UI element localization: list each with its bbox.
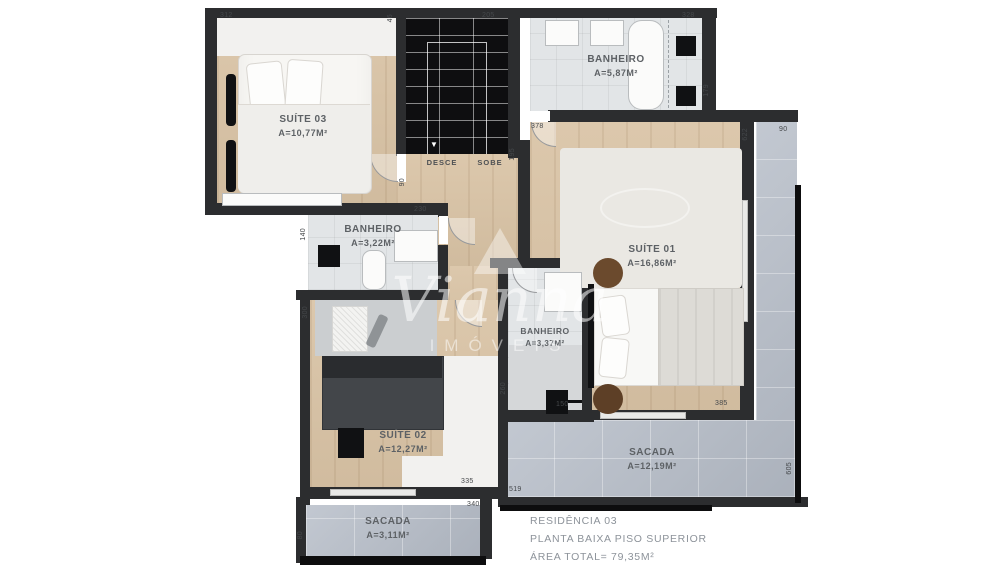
wall-left [205,8,217,215]
banheiro-center-label: BANHEIRO A=3,37M² [495,326,595,348]
dimension-label: 205 [482,12,495,19]
room-name: SUÍTE 02 [333,430,473,441]
dimension-label: 260 [500,382,507,395]
suite01-label: SUÍTE 01 A=16,86M² [582,244,722,268]
wall-stairs-right [508,8,520,158]
banheiro-center-shower-arm [568,400,582,403]
wall-banheiro-top-bottom [548,110,798,122]
wall-suite02-left [300,295,310,505]
suite01-bed-blanket [658,288,744,386]
sacada-big-railing [500,505,712,511]
suite01-pillow-2 [598,337,630,380]
dimension-label: 385 [715,400,728,407]
dimension-label: 378 [531,123,544,130]
dimension-label: 312 [220,12,233,19]
room-name: SUÍTE 03 [233,114,373,125]
suite02-bed-pillows [322,356,442,378]
room-name: BANHEIRO [495,326,595,336]
suite03-dresser [222,193,342,206]
dimension-label: 90 [399,178,406,186]
room-name: SACADA [318,516,458,527]
dimension-label: 230 [414,206,427,213]
balcony-strip-railing [795,185,801,503]
suite02-white-corner [402,456,498,488]
dimension-label: 328 [682,12,695,19]
suite03-wardrobe-strip [217,18,397,56]
banheiro-top-fixture-2 [676,86,696,106]
staircase-u-outline [427,42,487,154]
dimension-label: 46 [387,14,394,22]
banheiro-top-door-gap [530,111,550,121]
dimension-label: 195 [509,148,516,161]
suite02-closet-rug [332,306,368,352]
banheiro-mid-toilet [362,250,386,290]
room-area: A=3,22M² [303,238,443,248]
sacada-big-label: SACADA A=12,19M² [582,447,722,471]
room-name: SACADA [582,447,722,458]
dimension-label: 140 [300,228,307,241]
room-area: A=12,27M² [333,444,473,454]
banheiro-top-label: BANHEIRO A=5,87M² [546,54,686,78]
room-name: BANHEIRO [303,224,443,235]
dimension-label: 605 [786,462,793,475]
wall-suite03-stairs [396,8,406,156]
wall-hall-suite01 [518,140,530,266]
room-area: A=5,87M² [546,68,686,78]
room-area: A=12,19M² [582,461,722,471]
wall-top [205,8,717,18]
wall-banheiro-mid-bottom [296,290,448,300]
total-area: ÁREA TOTAL= 79,35M² [530,548,707,566]
suite02-label: SUÍTE 02 A=12,27M² [333,430,473,454]
stairs-down-arrow-icon: ▼ [430,141,438,149]
stairs-down-label: DESCE [416,158,468,167]
suite02-balcony-door-glass [330,489,416,496]
room-name: SUÍTE 01 [582,244,722,255]
plan-type: PLANTA BAIXA PISO SUPERIOR [530,530,707,548]
room-area: A=3,11M² [318,530,458,540]
dimension-label: 179 [703,84,710,97]
stairs-up-label: SOBE [470,158,510,167]
banheiro-mid-shower-fixture [318,245,340,267]
banheiro-top-sink-2 [590,20,624,46]
wall-sacada-big-left [498,420,508,505]
suite01-nightstand-2 [593,384,623,414]
dimension-label: 340 [467,501,480,508]
wall-banheiro-mid-right-b [438,245,448,300]
suite03-headboard-right [226,140,236,192]
suite03-label: SUÍTE 03 A=10,77M² [233,114,373,138]
banheiro-top-fixture-1 [676,36,696,56]
suite01-pillow-1 [597,294,630,338]
wall-sacada-small-left [296,497,306,563]
banheiro-center-vanity [544,272,582,312]
floor-plan: ▼ DESCE SOBE SUÍTE 03 A [0,0,1002,588]
room-name: BANHEIRO [546,54,686,65]
dimension-label: 150 [556,401,569,408]
room-area: A=16,86M² [582,258,722,268]
dimension-label: 80 [297,531,304,539]
dimension-label: 519 [509,486,522,493]
room-area: A=10,77M² [233,128,373,138]
plan-info: RESIDÊNCIA 03 PLANTA BAIXA PISO SUPERIOR… [530,512,707,566]
room-area: A=3,37M² [495,339,595,348]
wall-sacada-small-right [480,497,492,559]
dimension-label: 300 [302,306,309,319]
sacada-small-railing [300,556,486,565]
sacada-small-label: SACADA A=3,11M² [318,516,458,540]
dimension-label: 90 [779,126,787,133]
dimension-label: 335 [461,478,474,485]
dimension-label: 622 [742,128,749,141]
suite01-rug-oval [600,188,690,228]
residence-title: RESIDÊNCIA 03 [530,512,707,530]
banheiro-mid-label: BANHEIRO A=3,22M² [303,224,443,248]
banheiro-top-sink-1 [545,20,579,46]
wall-banheiro-top-right [702,8,716,120]
